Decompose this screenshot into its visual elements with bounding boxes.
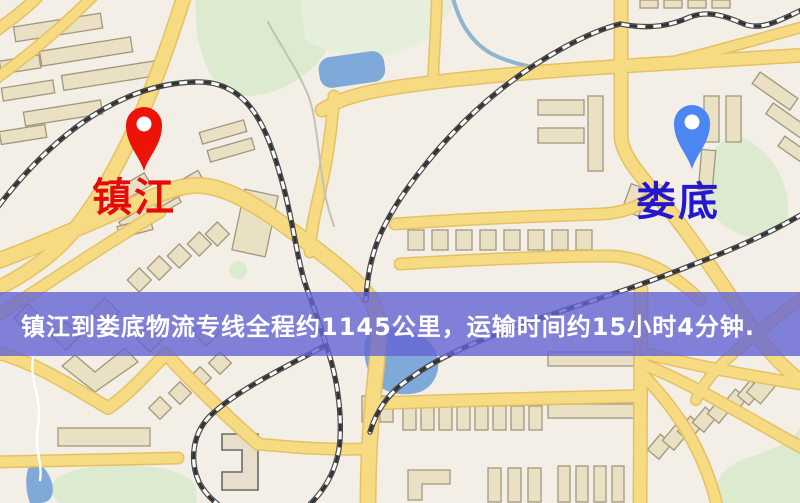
park-area — [229, 261, 247, 279]
route-info-text: 镇江到娄底物流专线全程约1145公里，运输时间约15小时4分钟. — [0, 307, 755, 342]
map-canvas[interactable] — [0, 0, 800, 503]
destination-pin-icon[interactable] — [662, 99, 722, 171]
map-screenshot: 镇江 娄底 镇江到娄底物流专线全程约1145公里，运输时间约15小时4分钟. — [0, 0, 800, 503]
origin-pin-icon[interactable] — [114, 101, 174, 173]
park-area — [52, 465, 197, 503]
origin-label: 镇江 — [92, 178, 176, 218]
destination-label: 娄底 — [636, 182, 720, 222]
info-banner: 镇江到娄底物流专线全程约1145公里，运输时间约15小时4分钟. — [0, 292, 800, 356]
